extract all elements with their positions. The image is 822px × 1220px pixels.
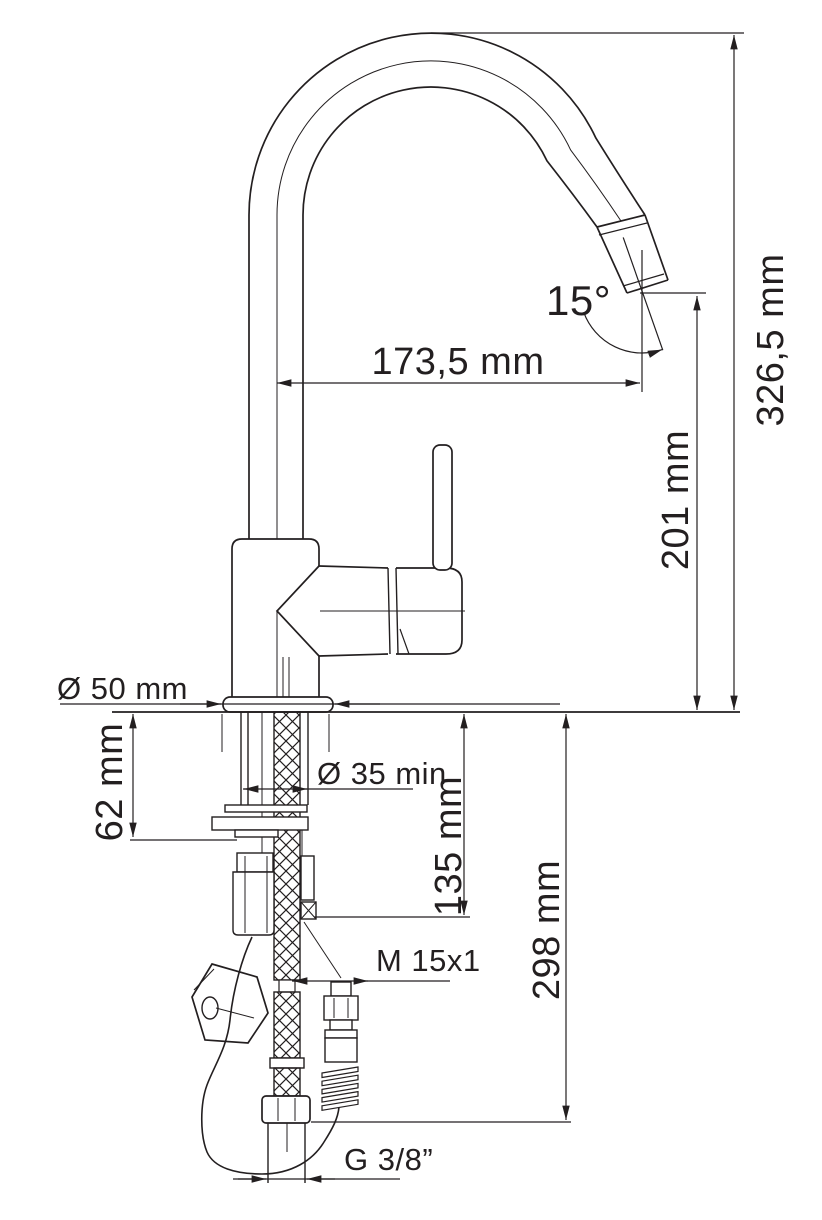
dim-label-outlet-height: 201 mm <box>655 430 697 570</box>
dim-spray-hose-thread: M 15x1 <box>292 943 481 981</box>
dim-hose-connector-drop: 135 mm <box>314 714 470 917</box>
drawing-canvas: 326,5 mm 201 mm 173,5 mm 15° Ø 50 mm 62 … <box>0 0 822 1220</box>
hose-weight <box>192 964 268 1043</box>
spray-hose-m15-connector <box>322 982 358 1110</box>
braided-hose-column <box>270 712 304 1096</box>
hose-guide-clip <box>301 830 316 919</box>
dim-label-hose-connector-drop: 135 mm <box>428 776 470 916</box>
mixer-cartridge-housing <box>319 566 465 656</box>
mounting-nut <box>233 853 274 935</box>
dim-label-base-diameter: Ø 50 mm <box>57 671 188 706</box>
technical-drawing: 326,5 mm 201 mm 173,5 mm 15° Ø 50 mm 62 … <box>0 0 822 1220</box>
dim-label-deck-thickness: 62 mm <box>89 723 131 842</box>
lever-handle <box>433 445 452 570</box>
spray-hose-loop <box>192 922 341 1174</box>
dim-label-total-height: 326,5 mm <box>750 254 792 427</box>
dim-label-supply-hose-drop: 298 mm <box>526 860 568 1000</box>
dim-outlet-height: 201 mm <box>640 293 706 710</box>
dim-label-spout-reach: 173,5 mm <box>372 341 545 383</box>
faucet-body <box>232 539 319 697</box>
dim-label-spray-hose-thread: M 15x1 <box>376 943 481 978</box>
hose-protection-spring <box>322 1067 358 1110</box>
dim-head-angle: 15° <box>546 237 663 353</box>
dim-label-supply-connection-thread: G 3/8” <box>344 1142 433 1177</box>
dim-label-head-angle: 15° <box>546 277 611 324</box>
